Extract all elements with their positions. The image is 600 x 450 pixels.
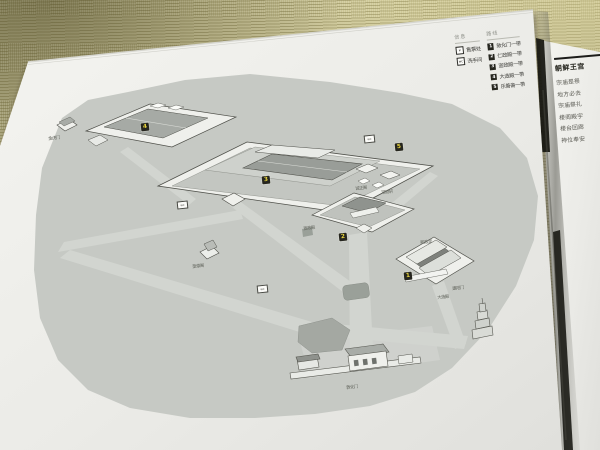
route-2-icon: 2	[488, 53, 495, 60]
photo-scene: 信息 ¥ 售票处 wc 洗手间 路线 1 敦化门一带 2 仁政殿一带 3 宣政殿…	[0, 0, 600, 450]
map-marker-5: 5	[395, 143, 404, 152]
legend-route-item: 2 仁政殿一带	[488, 50, 522, 60]
legend-info-header: 信息	[454, 31, 480, 44]
map-legend: 信息 ¥ 售票处 wc 洗手间 路线 1 敦化门一带 2 仁政殿一带 3 宣政殿…	[454, 23, 564, 97]
wc-icon: wc	[457, 57, 466, 66]
map-label: 诚正阁	[355, 185, 367, 192]
legend-route-item: 4 大造殿一带	[491, 70, 525, 80]
map-label: 大造殿	[437, 294, 449, 301]
legend-route-item: 3 宣政殿一带	[489, 60, 523, 70]
map-marker-1: 1	[404, 272, 413, 281]
right-page-article: 朝鲜王宫 宗庙是祭 地方必去 宗庙祭礼 楼阁殿宇 楼台回廊 神位奉安	[554, 52, 600, 148]
legend-route-item: 5 乐善斋一带	[492, 81, 526, 91]
wc-icon: wc	[364, 134, 376, 143]
legend-item-ticket: ¥ 售票处	[455, 44, 481, 55]
map-label: 金虎门	[48, 135, 60, 142]
map-marker-2: 2	[339, 233, 348, 242]
legend-route-column: 路线 1 敦化门一带 2 仁政殿一带 3 宣政殿一带 4 大造殿一带 5 乐善斋…	[486, 27, 526, 94]
ticket-icon: ¥	[455, 46, 464, 55]
route-1-icon: 1	[487, 43, 494, 50]
route-4-icon: 4	[491, 74, 498, 81]
wc-icon: wc	[257, 284, 269, 293]
legend-route-item: 1 敦化门一带	[487, 40, 521, 50]
map-label: 建阳门	[452, 285, 464, 292]
legend-item-wc: wc 洗手间	[457, 55, 483, 66]
route-3-icon: 3	[490, 64, 497, 71]
map-marker-3: 3	[262, 176, 271, 185]
map-label: 奎章阁	[192, 263, 204, 270]
route-5-icon: 5	[492, 84, 499, 91]
map-label: 敦化门	[346, 384, 358, 391]
map-label: 宣政殿	[303, 225, 315, 232]
map-marker-4: 4	[141, 123, 150, 132]
page-heading: 朝鲜王宫	[555, 58, 600, 74]
map-label: 熙政堂	[420, 239, 432, 246]
legend-route-header: 路线	[486, 27, 520, 40]
wc-icon: wc	[177, 200, 189, 209]
map-label: 观物轩	[381, 189, 393, 196]
legend-info-column: 信息 ¥ 售票处 wc 洗手间	[454, 31, 486, 97]
